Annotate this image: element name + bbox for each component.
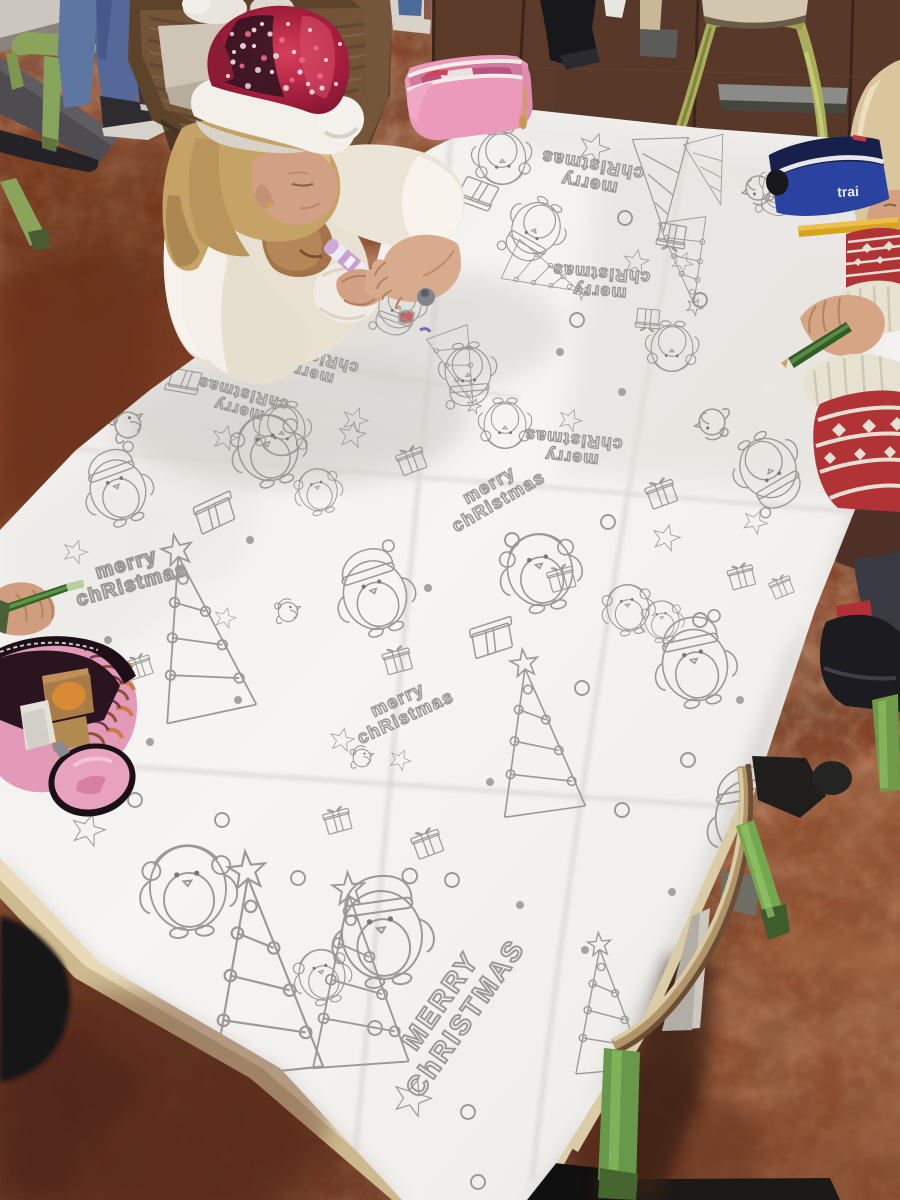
svg-text:trai: trai	[837, 183, 860, 200]
